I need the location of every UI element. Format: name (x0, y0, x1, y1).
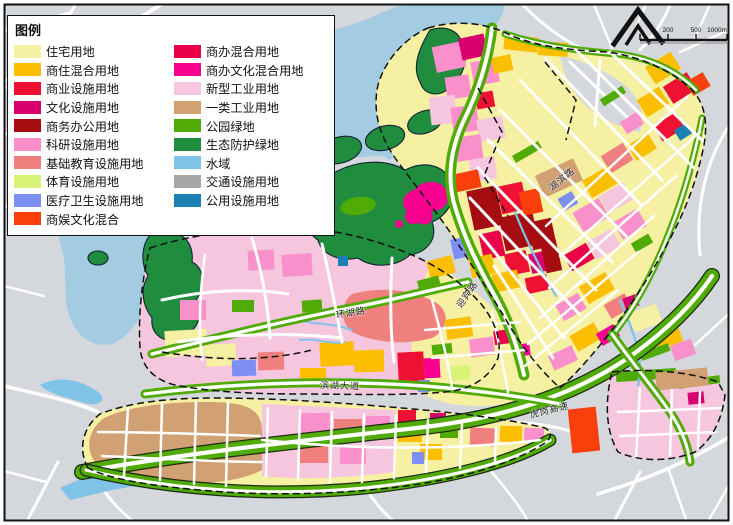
legend-item: 商住混合用地 (14, 61, 174, 80)
land-use-map-figure: 200 500 1000m 湖滨路 迎宾路 环湖路 滨湖大道 虎岗高速 图例 住… (0, 0, 733, 525)
legend-swatch (174, 194, 201, 207)
scale-tick-200: 200 (663, 27, 674, 34)
legend-item-label: 新型工业用地 (206, 79, 279, 97)
legend-swatch (174, 138, 201, 151)
legend-swatch (174, 45, 201, 58)
legend-swatch (14, 156, 41, 169)
legend-item: 基础教育设施用地 (14, 154, 174, 173)
scale-tick-1000m: 1000m (707, 27, 727, 34)
legend-item-label: 商业设施用地 (46, 79, 119, 97)
legend-item: 商娱文化混合 (14, 209, 174, 228)
legend-item-label: 商办混合用地 (206, 42, 279, 60)
legend-swatch (14, 175, 41, 188)
legend-item-label: 商办文化混合用地 (206, 61, 304, 79)
legend-item: 水域 (174, 154, 328, 173)
legend-item: 新型工业用地 (174, 79, 328, 98)
legend-swatch (14, 101, 41, 114)
legend-column-right: 商办混合用地 商办文化混合用地 新型工业用地 一类工业用地 (174, 42, 328, 228)
legend-item: 交通设施用地 (174, 172, 328, 191)
legend-item: 商办混合用地 (174, 42, 328, 61)
legend-item: 公园绿地 (174, 116, 328, 135)
legend-swatch (14, 119, 41, 132)
legend-item-label: 住宅用地 (46, 42, 95, 60)
legend-swatch (174, 101, 201, 114)
legend-swatch (174, 175, 201, 188)
legend-item-label: 体育设施用地 (46, 172, 119, 190)
legend-swatch (14, 194, 41, 207)
legend-column-left: 住宅用地 商住混合用地 商业设施用地 文化设施用地 (14, 42, 174, 228)
legend-item: 一类工业用地 (174, 98, 328, 117)
legend-item-label: 基础教育设施用地 (46, 154, 144, 172)
legend-item-label: 医疗卫生设施用地 (46, 191, 144, 209)
legend-item-label: 一类工业用地 (206, 98, 279, 116)
legend-title: 图例 (15, 20, 328, 39)
legend-item-label: 文化设施用地 (46, 98, 119, 116)
legend-swatch (174, 82, 201, 95)
legend-swatch (14, 138, 41, 151)
legend-item-label: 商娱文化混合 (46, 210, 119, 228)
legend-panel: 图例 住宅用地 商住混合用地 商业设施用地 (7, 15, 335, 236)
legend-item-label: 商务办公用地 (46, 117, 119, 135)
legend-item: 生态防护绿地 (174, 135, 328, 154)
legend-item: 住宅用地 (14, 42, 174, 61)
legend-swatch (174, 63, 201, 76)
legend-item-label: 商住混合用地 (46, 61, 119, 79)
legend-item: 医疗卫生设施用地 (14, 191, 174, 210)
legend-item: 科研设施用地 (14, 135, 174, 154)
legend-item-label: 科研设施用地 (46, 135, 119, 153)
legend-swatch (14, 212, 41, 225)
legend-item-label: 水域 (206, 154, 230, 172)
legend-swatch (174, 119, 201, 132)
legend-item-label: 交通设施用地 (206, 172, 279, 190)
legend-item: 体育设施用地 (14, 172, 174, 191)
legend-swatch (14, 63, 41, 76)
legend-swatch (174, 156, 201, 169)
legend-item-label: 公园绿地 (206, 117, 255, 135)
road-label: 滨湖大道 (320, 378, 360, 392)
legend-item: 公用设施用地 (174, 191, 328, 210)
scale-tick-500: 500 (691, 27, 702, 34)
legend-item: 文化设施用地 (14, 98, 174, 117)
legend-item: 商业设施用地 (14, 79, 174, 98)
legend-item-label: 生态防护绿地 (206, 135, 279, 153)
legend-swatch (14, 82, 41, 95)
legend-item: 商办文化混合用地 (174, 61, 328, 80)
legend-item-label: 公用设施用地 (206, 191, 279, 209)
legend-swatch (14, 45, 41, 58)
legend-item: 商务办公用地 (14, 116, 174, 135)
